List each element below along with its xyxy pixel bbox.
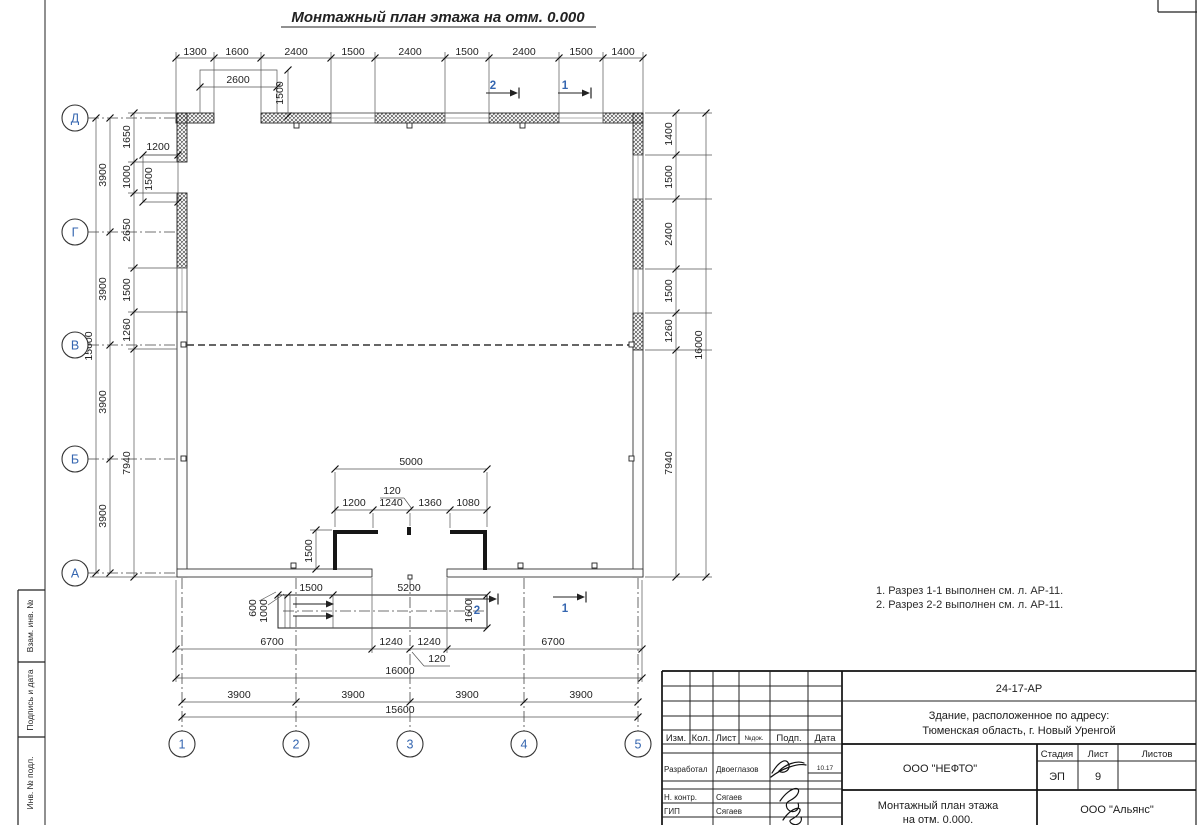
dimension-label: 7940 xyxy=(663,451,675,475)
row-gip-label: ГИП xyxy=(664,807,680,816)
dimension-label: 5200 xyxy=(397,582,421,594)
section-arrow-head xyxy=(582,90,590,97)
dimension-label: 1260 xyxy=(121,318,133,342)
dimension-label: 1500 xyxy=(341,46,365,58)
dimension-label: 3900 xyxy=(97,390,109,414)
dimension-lines xyxy=(96,58,706,717)
drawing-name-line-2: на отм. 0.000. xyxy=(903,814,973,825)
dimension-label: 1260 xyxy=(663,319,675,343)
dimension-label: 2650 xyxy=(121,218,133,242)
dimension-label: 1500 xyxy=(663,165,675,189)
dim-boxes xyxy=(143,70,277,202)
sheet-value: 9 xyxy=(1095,771,1101,783)
vestibule-walls xyxy=(333,527,487,570)
sheets-label: Листов xyxy=(1142,749,1173,760)
signatures xyxy=(771,761,806,825)
axis-row-label: В xyxy=(71,339,79,353)
address-line-1: Здание, расположенное по адресу: xyxy=(929,710,1110,722)
note-line-1: 1. Разрез 1-1 выполнен см. л. АР-11. xyxy=(876,585,1063,597)
axis-col-label: 1 xyxy=(179,738,186,752)
sheet-label: Лист xyxy=(1088,749,1109,760)
dimension-label: 7940 xyxy=(121,451,133,475)
col-podp: Подп. xyxy=(776,733,801,744)
drawing-name-line-1: Монтажный план этажа xyxy=(878,800,999,812)
side-strip-label-vzam: Взам. инв. № xyxy=(25,600,35,653)
row-gip-name: Сягаев xyxy=(716,807,742,816)
stage-label: Стадия xyxy=(1041,749,1073,760)
window-segments-top xyxy=(331,113,603,123)
dimension-label: 1500 xyxy=(274,81,286,105)
section-marker-label: 1 xyxy=(562,603,569,615)
dimension-label: 1500 xyxy=(121,278,133,302)
axis-row-label: Б xyxy=(71,453,79,467)
contractor-name: ООО "Альянс" xyxy=(1080,804,1154,816)
dimension-label: 1200 xyxy=(342,497,366,509)
dimension-label: 120 xyxy=(428,653,446,665)
section-marker-label: 1 xyxy=(562,80,569,92)
row-ncontr-name: Сягаев xyxy=(716,793,742,802)
dimension-label: 1240 xyxy=(379,497,403,509)
dimension-label: 1240 xyxy=(379,636,403,648)
axis-bubbles: ДГВБА12345 xyxy=(62,105,651,757)
dimension-label: 6700 xyxy=(260,636,284,648)
note-line-2: 2. Разрез 2-2 выполнен см. л. АР-11. xyxy=(876,599,1063,611)
dimension-label: 1080 xyxy=(456,497,480,509)
dimension-label: 2400 xyxy=(398,46,422,58)
dimension-label: 3900 xyxy=(97,504,109,528)
dimension-label: 2600 xyxy=(226,74,250,86)
dimension-label: 3900 xyxy=(97,277,109,301)
walls xyxy=(176,113,643,579)
side-strip-label-inv: Инв. № подл. xyxy=(25,757,35,810)
dimension-label: 1000 xyxy=(121,165,133,189)
dimension-label: 1200 xyxy=(146,141,170,153)
section-marker-label: 2 xyxy=(490,80,496,92)
dimension-label: 1600 xyxy=(225,46,249,58)
dimension-label: 1500 xyxy=(569,46,593,58)
column-markers xyxy=(181,123,634,579)
axis-col-label: 5 xyxy=(635,738,642,752)
section-arrow-head xyxy=(577,594,585,601)
dimension-label: 3900 xyxy=(569,689,593,701)
dimension-label: 1500 xyxy=(143,167,155,191)
frame-corner-box xyxy=(1158,0,1197,12)
axis-col-label: 2 xyxy=(293,738,300,752)
dimension-label: 1500 xyxy=(299,582,323,594)
dimension-label: 3900 xyxy=(227,689,251,701)
entrance-porch xyxy=(278,595,487,628)
col-data: Дата xyxy=(814,733,836,744)
section-arrow-head xyxy=(489,596,497,603)
col-list: Лист xyxy=(716,733,737,744)
row-developed-name: Двоеглазов xyxy=(716,765,759,774)
col-ndok: №док. xyxy=(744,735,763,742)
section-marker-label: 2 xyxy=(474,605,480,617)
col-kol: Кол. xyxy=(692,733,711,744)
dimension-label: 3900 xyxy=(97,163,109,187)
notes: 1. Разрез 1-1 выполнен см. л. АР-11. 2. … xyxy=(876,585,1063,611)
dimension-label: 1500 xyxy=(455,46,479,58)
dimension-label: 1400 xyxy=(611,46,635,58)
stage-value: ЭП xyxy=(1049,771,1065,783)
doc-number: 24-17-АР xyxy=(996,683,1042,695)
axis-row-label: А xyxy=(71,567,80,581)
floor-plan-canvas: Монтажный план этажа на отм. 0.000 xyxy=(0,0,1200,825)
dimension-label: 5000 xyxy=(399,456,423,468)
axis-row-label: Д xyxy=(71,112,80,126)
dimension-label: 15600 xyxy=(385,704,414,716)
dimension-label: 1650 xyxy=(121,125,133,149)
dimension-label: 3900 xyxy=(341,689,365,701)
dimension-label: 1240 xyxy=(417,636,441,648)
dimension-label: 3900 xyxy=(455,689,479,701)
dimension-label: 1000 xyxy=(258,599,270,623)
drawing-sheet: Монтажный план этажа на отм. 0.000 xyxy=(0,0,1200,825)
dimension-label: 6700 xyxy=(541,636,565,648)
row-developed-label: Разработал xyxy=(664,765,708,774)
address-line-2: Тюменская область, г. Новый Уренгой xyxy=(922,725,1115,737)
dimension-label: 1500 xyxy=(663,279,675,303)
dimension-label: 16000 xyxy=(385,665,414,677)
dimension-label: 1300 xyxy=(183,46,207,58)
dimension-label: 120 xyxy=(383,485,401,497)
title-block: 24-17-АР Здание, расположенное по адресу… xyxy=(662,671,1196,825)
axis-col-label: 3 xyxy=(407,738,414,752)
dimension-label: 2400 xyxy=(512,46,536,58)
side-strip-label-podpis: Подпись и дата xyxy=(25,669,35,730)
dimension-label: 16000 xyxy=(693,330,705,359)
section-arrow-head xyxy=(510,90,518,97)
page-title: Монтажный план этажа на отм. 0.000 xyxy=(291,9,585,26)
dimension-label: 2400 xyxy=(284,46,308,58)
dimension-label: 1500 xyxy=(303,539,315,563)
dimension-label: 1360 xyxy=(418,497,442,509)
axis-row-label: Г xyxy=(72,226,79,240)
row-ncontr-label: Н. контр. xyxy=(664,793,697,802)
side-strip: Взам. инв. № Подпись и дата Инв. № подл. xyxy=(25,600,35,810)
axis-col-label: 4 xyxy=(521,738,528,752)
row-developed-date: 10.17 xyxy=(817,765,834,772)
dimension-label: 2400 xyxy=(663,222,675,246)
drawing-title: Монтажный план этажа на отм. 0.000 xyxy=(281,9,596,27)
col-izm: Изм. xyxy=(666,733,686,744)
dimension-label: 1400 xyxy=(663,122,675,146)
company-name: ООО "НЕФТО" xyxy=(903,763,977,775)
